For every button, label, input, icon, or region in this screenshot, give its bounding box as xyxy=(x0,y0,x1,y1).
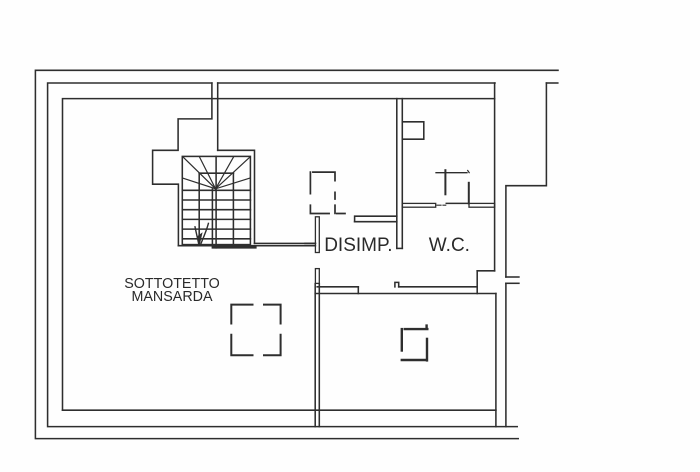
svg-text:MANSARDA: MANSARDA xyxy=(131,289,212,305)
svg-text:DISIMP.: DISIMP. xyxy=(324,235,392,256)
svg-text:W.C.: W.C. xyxy=(429,235,470,256)
